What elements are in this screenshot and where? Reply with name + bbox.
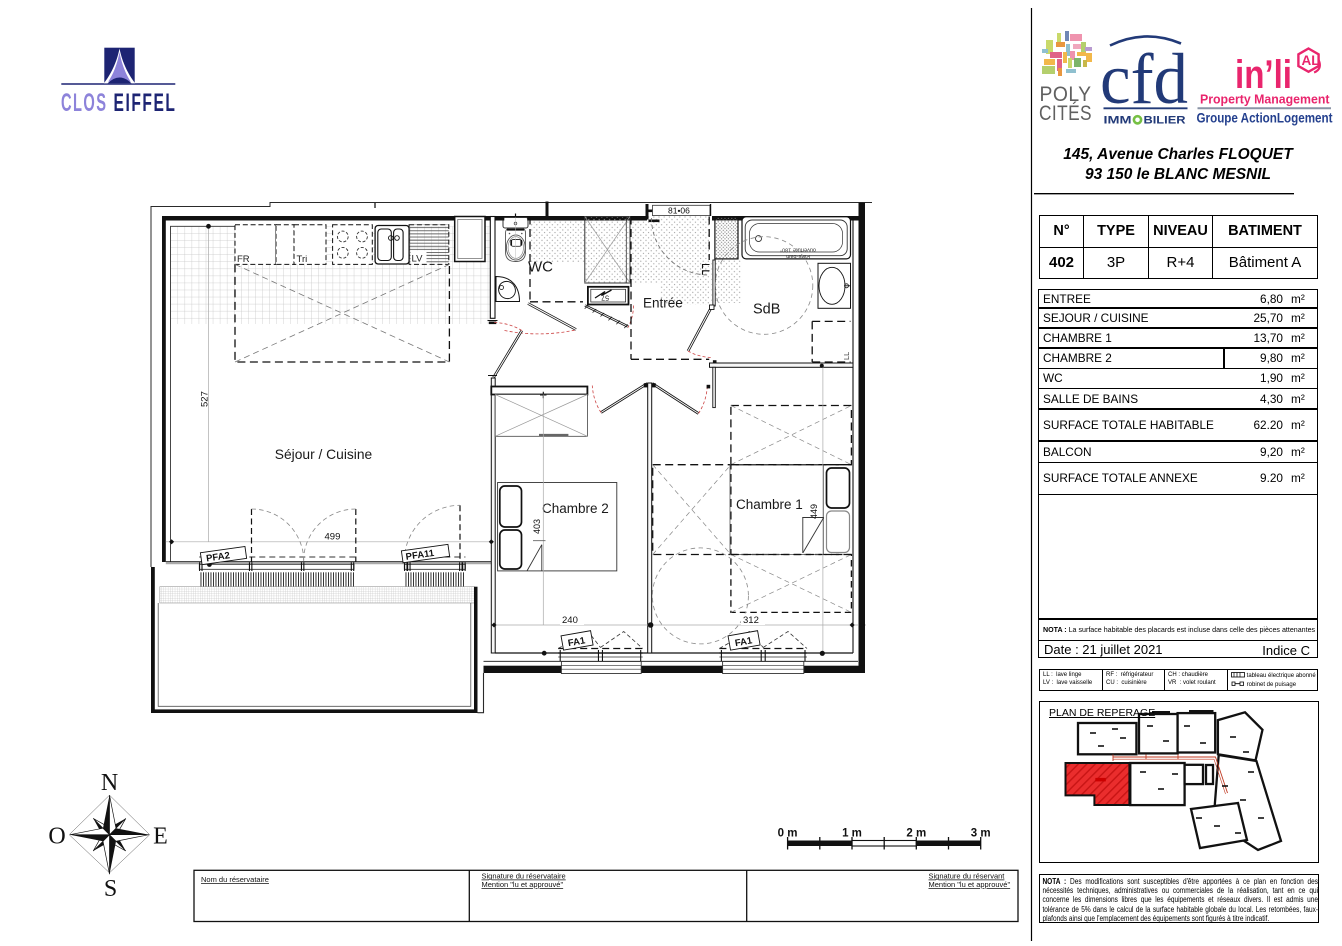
svg-text:0 m: 0 m <box>778 828 798 840</box>
svg-text:N: N <box>101 770 118 796</box>
svg-text:3 m: 3 m <box>971 828 991 840</box>
svg-text:2 m: 2 m <box>906 828 926 840</box>
svg-text:E: E <box>153 824 168 850</box>
svg-text:Mention "lu et approuvé": Mention "lu et approuvé" <box>482 880 564 889</box>
svg-text:1 m: 1 m <box>842 828 862 840</box>
svg-text:O: O <box>48 824 65 850</box>
svg-text:Mention "lu et approuvé": Mention "lu et approuvé" <box>929 880 1011 889</box>
svg-text:S: S <box>104 876 117 902</box>
svg-text:Nom du réservataire: Nom du réservataire <box>201 875 269 884</box>
